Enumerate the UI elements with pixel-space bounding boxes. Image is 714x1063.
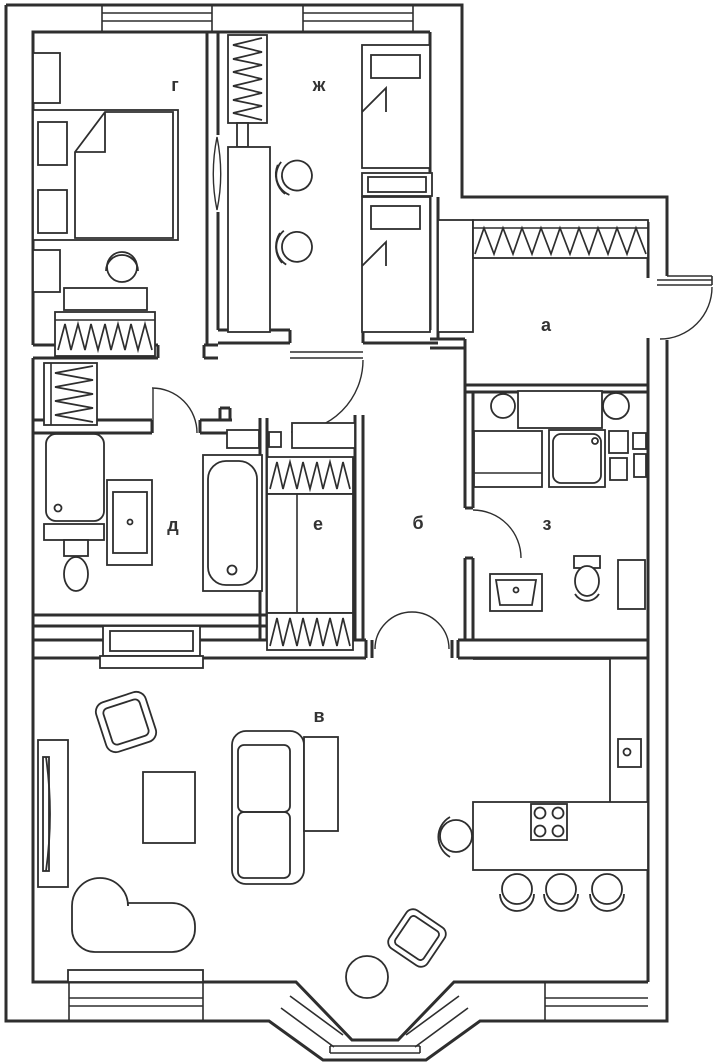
chair-back bbox=[272, 162, 289, 197]
toilet-bowl bbox=[64, 557, 88, 591]
bay-window-bottom bbox=[330, 1046, 420, 1053]
bar-stool bbox=[590, 874, 624, 911]
laundry-counter bbox=[518, 391, 602, 428]
entry-threshold bbox=[657, 276, 712, 285]
furniture-room-g bbox=[33, 53, 178, 310]
wall-shelf bbox=[609, 431, 628, 453]
armchair-seat bbox=[102, 698, 150, 746]
pillow bbox=[38, 122, 67, 165]
room-label-zh: ж bbox=[312, 75, 326, 95]
window-top-1 bbox=[102, 5, 212, 32]
floor-plan-page: г ж а д е б з в bbox=[0, 0, 714, 1063]
pillow bbox=[371, 206, 420, 229]
armchair bbox=[93, 689, 159, 755]
closet-a-cabinet bbox=[438, 220, 473, 332]
fixtures-room-d bbox=[44, 434, 262, 591]
room-label-e: е bbox=[313, 514, 323, 534]
window-sill-radiator bbox=[68, 970, 203, 982]
fixtures-room-z bbox=[474, 391, 646, 611]
toilet-bowl bbox=[575, 566, 599, 596]
sliding-door-leaf bbox=[213, 137, 221, 210]
room-label-d: д bbox=[167, 515, 179, 535]
window-bottom-right bbox=[545, 982, 648, 1021]
door-z-arc bbox=[473, 510, 521, 558]
pillow bbox=[371, 55, 420, 78]
nightstand bbox=[33, 250, 60, 292]
desk-chair bbox=[272, 155, 315, 197]
armchair-outer bbox=[385, 906, 449, 970]
round-table bbox=[346, 956, 388, 998]
window-bottom-left bbox=[69, 982, 203, 1021]
room-label-b: б bbox=[412, 513, 423, 533]
room-label-v: в bbox=[313, 706, 324, 726]
door-zh-arc bbox=[290, 352, 363, 432]
desk bbox=[228, 147, 270, 332]
dryer-top bbox=[603, 393, 629, 419]
entry-door-arc bbox=[660, 287, 712, 339]
chair-seat bbox=[281, 231, 313, 263]
room-label-g: г bbox=[171, 75, 179, 95]
desk-chair bbox=[275, 229, 313, 265]
cabinet-sill bbox=[100, 656, 203, 668]
pillow bbox=[38, 190, 67, 233]
bath-cabinet bbox=[474, 431, 542, 487]
chair-seat bbox=[279, 157, 315, 193]
room-label-a: а bbox=[541, 315, 552, 335]
door-d-arc bbox=[152, 388, 197, 433]
armchair bbox=[385, 906, 449, 970]
chair-back bbox=[275, 231, 286, 266]
stool-seat bbox=[546, 874, 576, 904]
sofa bbox=[232, 731, 304, 884]
kitchen-zone-edge bbox=[473, 659, 610, 802]
side-table bbox=[304, 737, 338, 831]
floor-plan-drawing: г ж а д е б з в bbox=[0, 0, 714, 1063]
wall-shelf bbox=[610, 458, 627, 480]
window-top-2 bbox=[303, 5, 413, 32]
nightstand bbox=[33, 53, 60, 103]
nightstand-inner bbox=[368, 177, 426, 192]
bath-bench bbox=[44, 524, 104, 540]
sink-bowl bbox=[113, 492, 147, 553]
armchair-outer bbox=[93, 689, 159, 755]
wall-shelf bbox=[633, 433, 646, 449]
bathtub bbox=[203, 455, 262, 591]
stool-seat bbox=[502, 874, 532, 904]
radiator bbox=[227, 430, 259, 448]
furniture-room-v bbox=[38, 626, 449, 998]
wall-shelf bbox=[634, 454, 646, 477]
small-box bbox=[269, 432, 281, 447]
toilet-tank bbox=[64, 540, 88, 556]
tall-cabinet bbox=[618, 560, 645, 609]
double-door-v bbox=[375, 612, 449, 649]
wall-g-zh bbox=[207, 32, 218, 345]
corridor-cabinets bbox=[227, 423, 355, 448]
dresser bbox=[64, 288, 147, 310]
chaise-lounge bbox=[72, 878, 195, 952]
shelf-cabinet bbox=[292, 423, 355, 448]
round-chair bbox=[107, 252, 137, 282]
wall-d-bottom bbox=[33, 615, 267, 626]
chair-seat bbox=[440, 820, 472, 852]
stool-seat bbox=[592, 874, 622, 904]
bar-stool bbox=[500, 874, 534, 911]
closet-zh-stub bbox=[237, 123, 248, 147]
coffee-table bbox=[143, 772, 195, 843]
kitchen-chair bbox=[438, 817, 472, 857]
kitchen bbox=[438, 659, 648, 911]
washer-top bbox=[491, 394, 515, 418]
bar-stool bbox=[544, 874, 578, 911]
closet-e-middle bbox=[267, 494, 353, 613]
room-label-z: з bbox=[543, 514, 552, 534]
